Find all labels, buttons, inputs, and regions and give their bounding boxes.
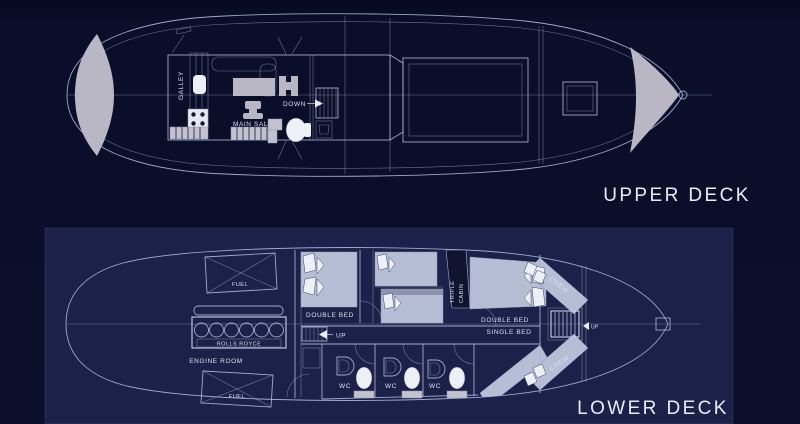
cabinet	[268, 119, 282, 143]
fuel-aft-label: FUEL	[229, 394, 245, 400]
double-bed-port-label: DOUBLE BED	[306, 312, 354, 319]
wc-label: WC	[339, 383, 351, 390]
up-main-label: UP	[336, 333, 346, 340]
stove	[188, 109, 208, 128]
wc-label: WC	[429, 383, 441, 390]
triple-cabin-label-1: TRIPLE	[450, 281, 456, 303]
stern-seat	[75, 34, 114, 156]
fuel-forward-label: FUEL	[232, 282, 248, 288]
wc-label: WC	[385, 383, 397, 390]
galley-area: GALLEY	[170, 27, 208, 139]
day-head	[268, 118, 332, 143]
down-arrow	[315, 100, 323, 108]
bow-foredeck	[630, 47, 679, 153]
triple-cabin: TRIPLE CABIN	[446, 250, 470, 308]
deck-hatch-inner	[567, 86, 593, 111]
deck-hatch	[563, 82, 597, 115]
engine-room-label: ENGINE ROOM	[189, 358, 243, 365]
up-crew-label: UP	[591, 325, 599, 331]
double-bed-starboard-label: DOUBLE BED	[481, 317, 529, 324]
single-bed-label: SINGLE BED	[486, 329, 531, 336]
cabin-trunk-inner	[409, 64, 522, 136]
down-label: DOWN	[283, 101, 306, 108]
upper-deck-plan: GALLEY MAIN SALON	[67, 14, 751, 206]
triple-cabin-label-2: CABIN	[459, 284, 465, 303]
upper-deck-title: UPPER DECK	[603, 185, 751, 206]
cabin-trunk	[403, 58, 528, 142]
toilet	[286, 118, 306, 142]
galley-sink	[193, 75, 206, 94]
main-salon-area: MAIN SALON	[212, 57, 298, 140]
lower-deck-title: LOWER DECK	[577, 398, 729, 419]
salon-table	[233, 78, 275, 96]
rolls-royce-label: ROLLS ROYCE	[217, 342, 262, 348]
pedestal-seat	[243, 101, 263, 119]
blueprint-page: GALLEY MAIN SALON	[0, 0, 800, 424]
salon-chair	[279, 76, 298, 96]
galley-label: GALLEY	[178, 71, 185, 100]
sink-unit	[316, 121, 332, 138]
side-door-line	[172, 35, 184, 53]
deck-plans-drawing: GALLEY MAIN SALON	[0, 0, 800, 424]
